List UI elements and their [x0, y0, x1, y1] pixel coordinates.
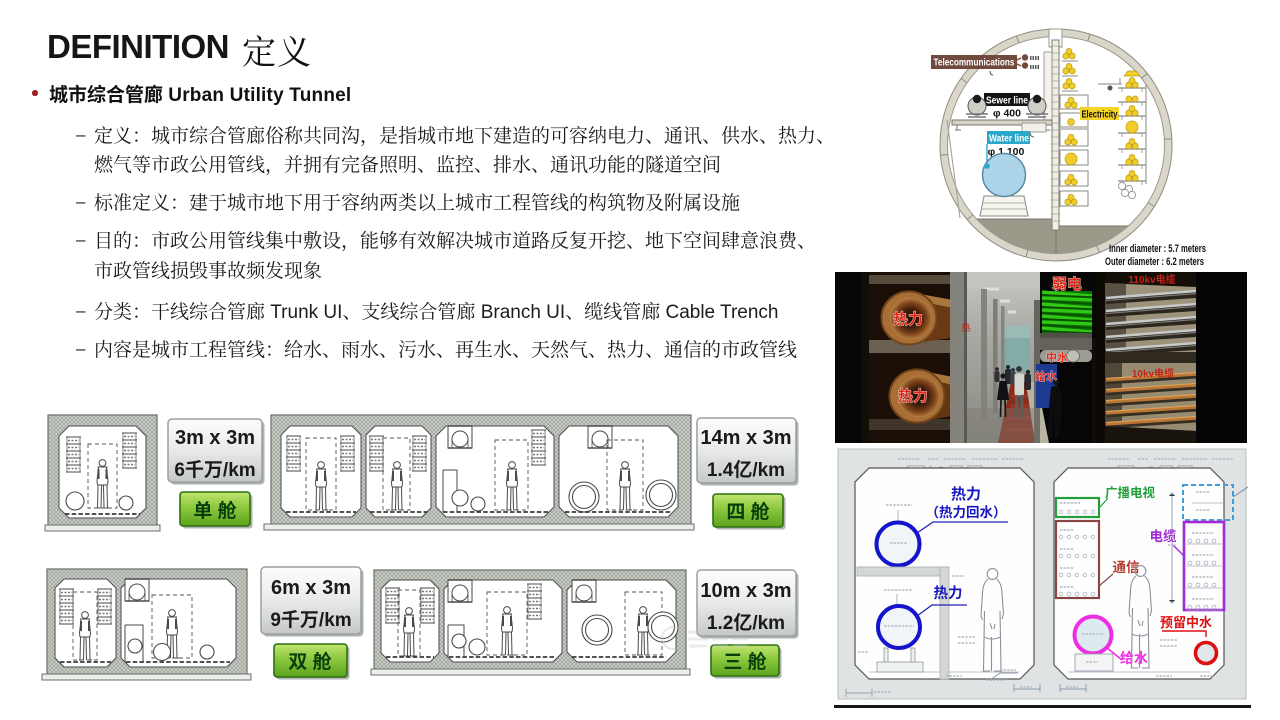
svg-text:Telecommunications: Telecommunications	[934, 58, 1015, 69]
svg-text:3m x 3m: 3m x 3m	[175, 427, 255, 449]
svg-text:14m x 3m: 14m x 3m	[700, 427, 791, 449]
svg-text:双 舱: 双 舱	[288, 647, 331, 674]
svg-text:单 舱: 单 舱	[193, 496, 236, 523]
svg-text:电缆: 电缆	[1150, 525, 1178, 545]
svg-text:广播电视: 广播电视	[1105, 482, 1156, 501]
svg-text:热: 热	[961, 321, 970, 334]
svg-text:6千万/km: 6千万/km	[174, 455, 255, 482]
svg-text:弱电: 弱电	[1052, 273, 1082, 294]
svg-text:Electricity: Electricity	[1082, 110, 1118, 121]
svg-text:热力: 热力	[934, 582, 963, 603]
svg-text:1.4亿/km: 1.4亿/km	[707, 455, 785, 482]
svg-text:110kv电缆: 110kv电缆	[1128, 272, 1175, 286]
svg-text:Inner diameter : 5.7 meters: Inner diameter : 5.7 meters	[1109, 243, 1206, 255]
svg-text:给水: 给水	[1035, 368, 1057, 384]
svg-text:热力: 热力	[898, 385, 928, 406]
svg-text:热力: 热力	[893, 308, 923, 329]
svg-text:Water line: Water line	[989, 134, 1029, 145]
svg-text:10m x 3m: 10m x 3m	[700, 580, 791, 602]
svg-text:四 舱: 四 舱	[726, 497, 769, 524]
svg-text:Sewer line: Sewer line	[986, 96, 1028, 107]
svg-text:（热力回水）: （热力回水）	[926, 501, 1007, 521]
svg-text:预留中水: 预留中水	[1160, 612, 1212, 631]
svg-text:Outer diameter : 6.2 meters: Outer diameter : 6.2 meters	[1105, 256, 1204, 268]
svg-text:φ 400: φ 400	[993, 108, 1021, 120]
svg-text:三 舱: 三 舱	[723, 647, 766, 674]
svg-text:9千万/km: 9千万/km	[270, 605, 351, 632]
svg-text:6m x 3m: 6m x 3m	[271, 577, 351, 599]
svg-text:10kv电缆: 10kv电缆	[1132, 365, 1174, 380]
svg-text:给水: 给水	[1120, 648, 1148, 668]
svg-text:中水: 中水	[1046, 349, 1068, 365]
